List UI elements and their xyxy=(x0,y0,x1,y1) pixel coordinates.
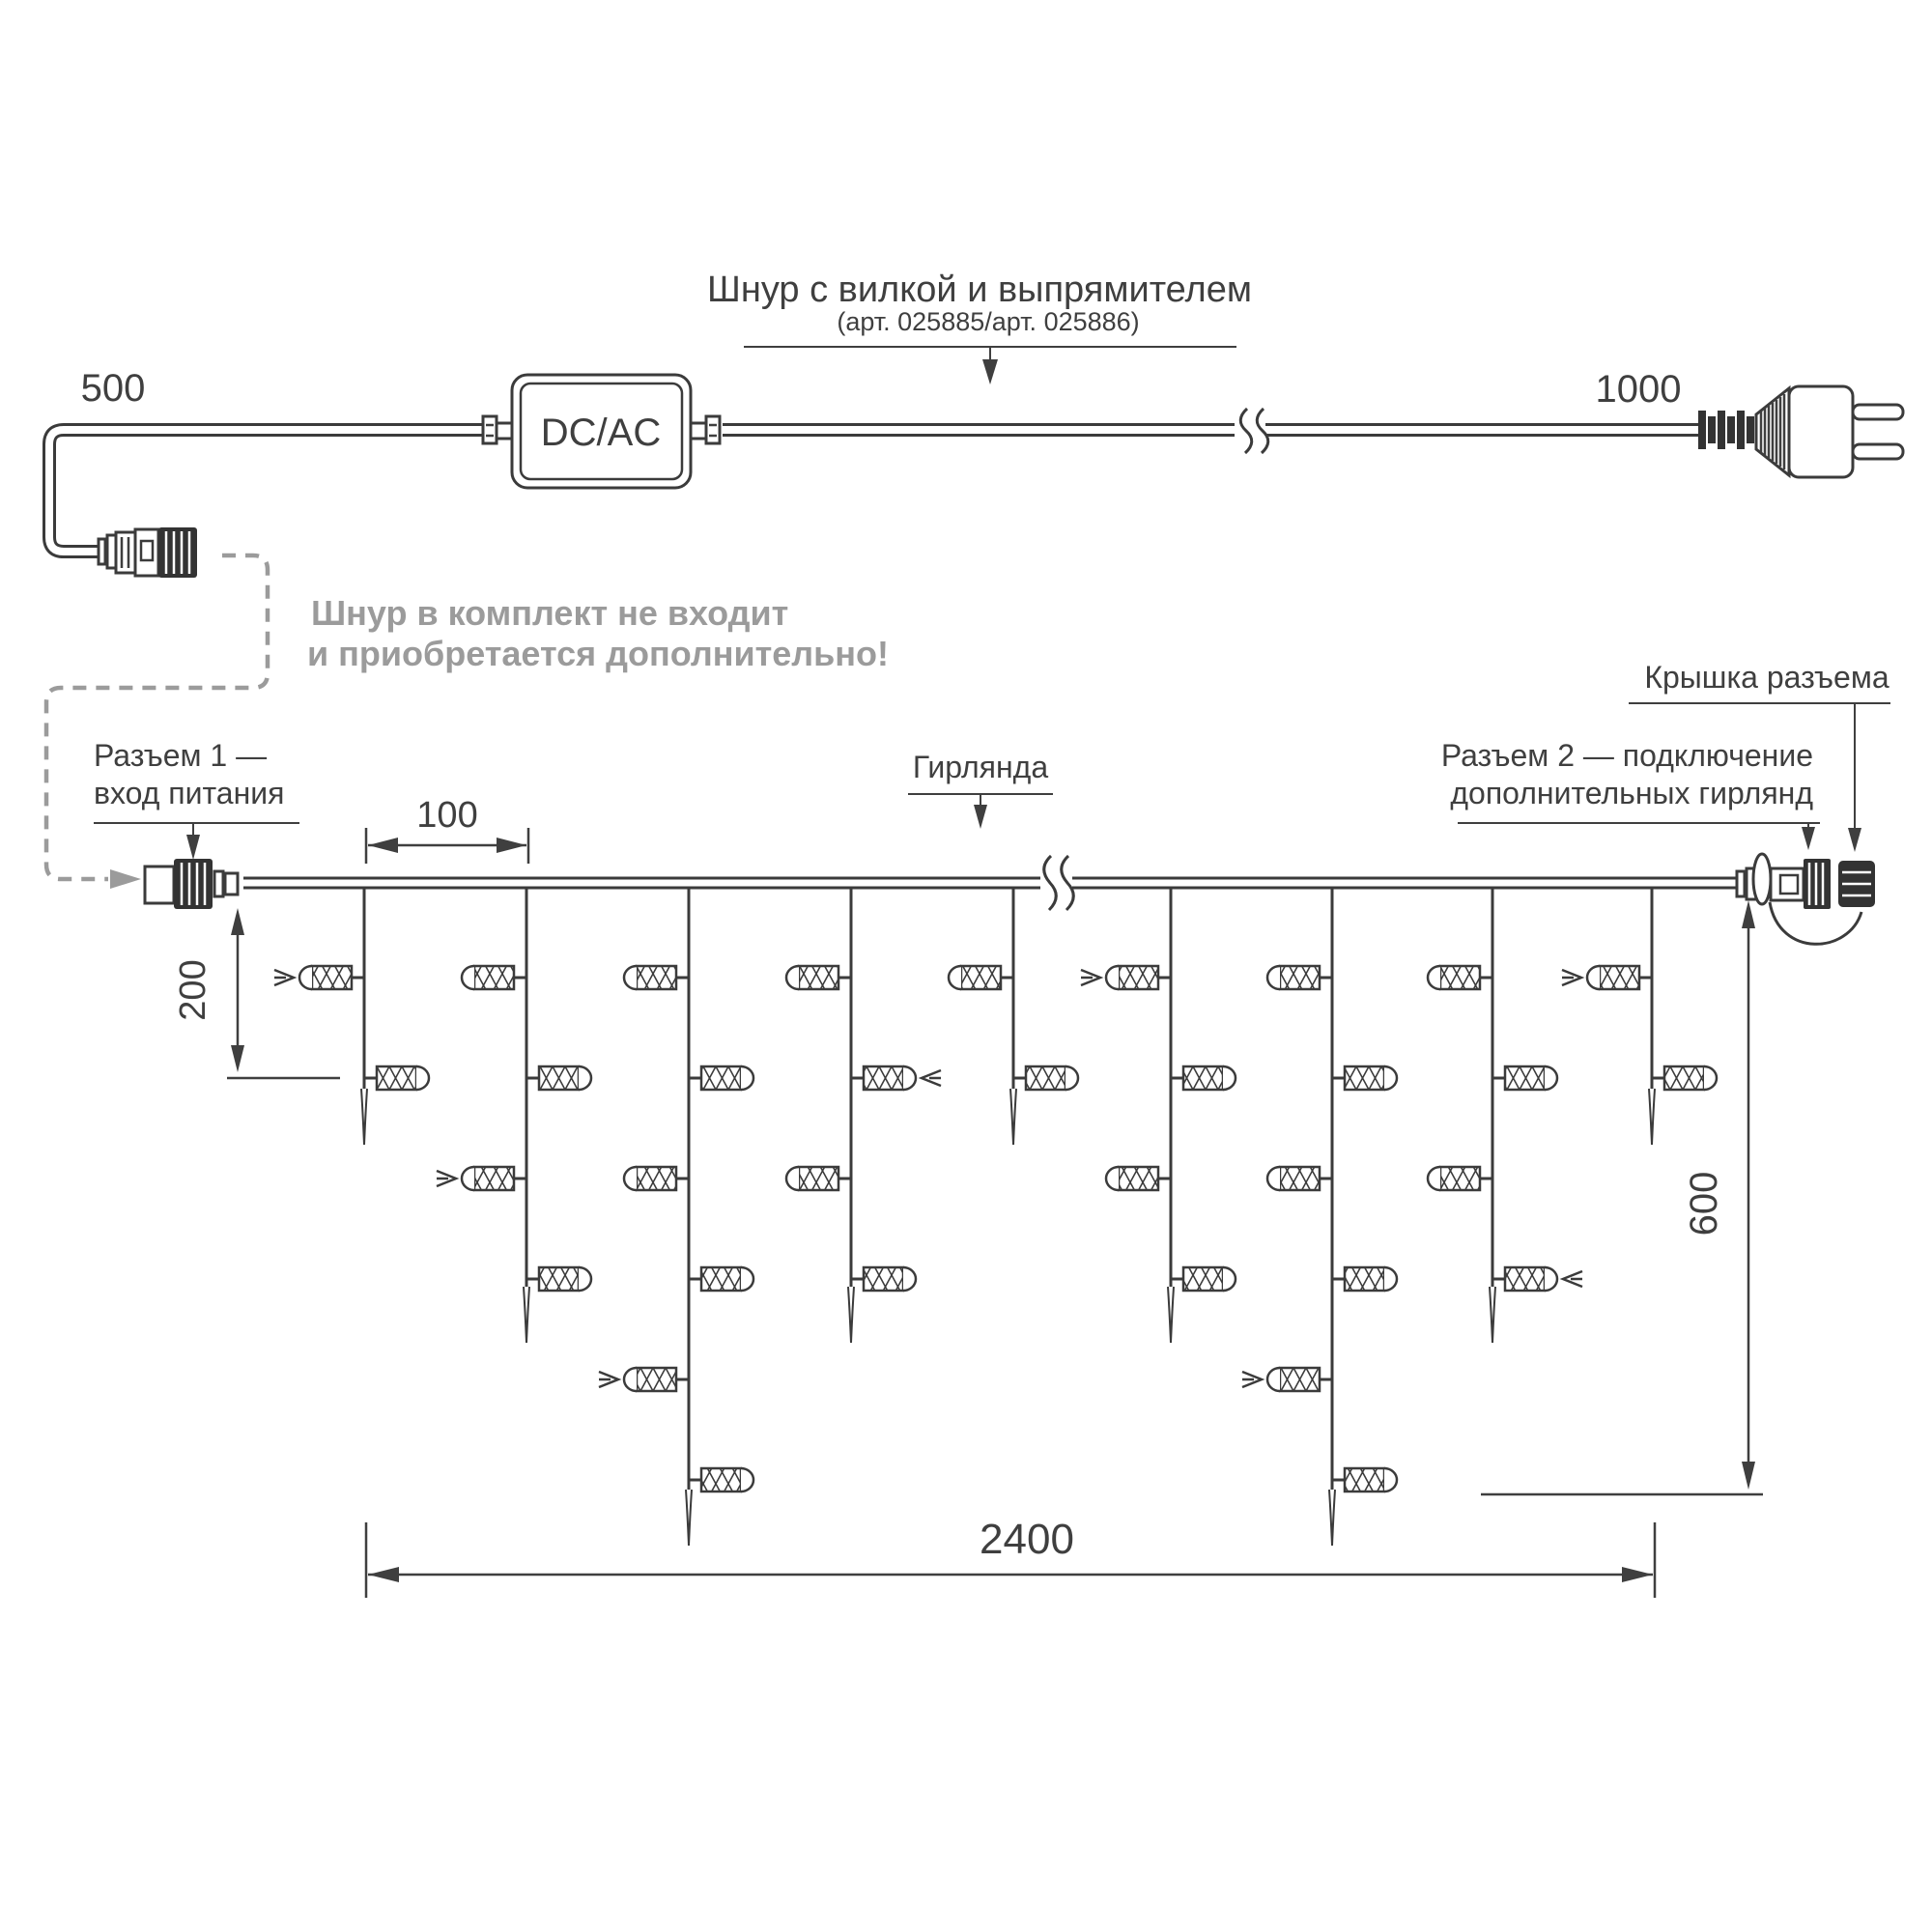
led-cap xyxy=(741,1066,753,1090)
dim-600-label: 600 xyxy=(1683,1172,1725,1236)
led-body xyxy=(312,966,352,989)
connector2-label-line2: дополнительных гирлянд xyxy=(1450,776,1813,810)
cord-output-connector xyxy=(99,527,197,578)
drop-tip xyxy=(848,1287,854,1343)
led-cap xyxy=(1267,1368,1280,1391)
led-body xyxy=(1183,1066,1223,1090)
led-cap xyxy=(1106,1167,1119,1190)
drop-tip xyxy=(1010,1089,1016,1145)
led-body xyxy=(1345,1066,1384,1090)
led-body xyxy=(1280,1167,1320,1190)
led-body xyxy=(1345,1267,1384,1291)
garland-drop xyxy=(1562,889,1717,1145)
cap-arrowhead-icon xyxy=(1848,828,1861,852)
plug-strain-relief xyxy=(1698,411,1754,449)
led-body xyxy=(474,966,514,989)
garland-drop xyxy=(599,889,753,1546)
connector1-label-line1: Разъем 1 — xyxy=(94,738,267,773)
garland-break-icon xyxy=(1044,856,1074,910)
garland-drop xyxy=(786,889,941,1343)
garland-drop xyxy=(1428,889,1582,1343)
led-body xyxy=(1440,966,1480,989)
led-cap xyxy=(1065,1066,1078,1090)
led-cap xyxy=(1587,966,1600,989)
led-cap xyxy=(579,1066,591,1090)
note-line2: и приобретается дополнительно! xyxy=(307,634,889,673)
power-plug xyxy=(1698,386,1903,477)
led-body xyxy=(1026,1066,1065,1090)
dcac-right-nub xyxy=(691,416,720,443)
dim-2400-label: 2400 xyxy=(980,1516,1074,1563)
led-cap xyxy=(1704,1066,1717,1090)
led-cap xyxy=(1106,966,1119,989)
led-body xyxy=(799,966,838,989)
led-marker-icon xyxy=(1563,1271,1582,1287)
led-body xyxy=(1119,966,1158,989)
cable-break-icon xyxy=(1240,409,1268,453)
led-body xyxy=(474,1167,514,1190)
garland-drop xyxy=(1242,889,1397,1546)
garland-wiring-diagram: Шнур с вилкой и выпрямителем (арт. 02588… xyxy=(0,0,1932,1932)
drop-tip xyxy=(1490,1287,1495,1343)
plug-prong-bottom xyxy=(1853,444,1903,459)
diagram-page: Шнур с вилкой и выпрямителем (арт. 02588… xyxy=(0,0,1932,1932)
garland-drop xyxy=(1081,889,1236,1343)
garland-label: Гирлянда xyxy=(913,750,1048,784)
cap-label: Крышка разъема xyxy=(1644,660,1889,695)
led-body xyxy=(1280,1368,1320,1391)
led-body xyxy=(1600,966,1639,989)
led-marker-icon xyxy=(1242,1372,1262,1387)
led-body xyxy=(1664,1066,1704,1090)
led-body xyxy=(864,1066,903,1090)
led-cap xyxy=(741,1468,753,1492)
led-cap xyxy=(786,966,799,989)
garland-arrowhead-icon xyxy=(974,805,987,829)
drop-tip xyxy=(361,1089,367,1145)
led-cap xyxy=(1545,1066,1557,1090)
dim-100-label: 100 xyxy=(416,795,477,836)
led-cap xyxy=(1428,966,1440,989)
cord-section: Шнур с вилкой и выпрямителем (арт. 02588… xyxy=(49,270,1903,578)
drop-tip xyxy=(686,1490,692,1546)
drop-tip xyxy=(524,1287,529,1343)
dim-200: 200 xyxy=(173,908,340,1078)
note-line1: Шнур в комплект не входит xyxy=(311,593,788,633)
connector2-label-line1: Разъем 2 — подключение xyxy=(1441,738,1813,773)
plug-cone-hatch xyxy=(1761,394,1784,469)
garland-drop xyxy=(437,889,591,1343)
connector1-power-input xyxy=(145,859,238,909)
led-body xyxy=(701,1267,741,1291)
dcac-label: DC/AC xyxy=(541,412,661,454)
dim-100: 100 xyxy=(366,795,528,864)
dim-1000-label: 1000 xyxy=(1596,368,1682,411)
led-body xyxy=(701,1066,741,1090)
connector2-extension xyxy=(1737,854,1875,944)
dashed-route xyxy=(46,555,268,879)
led-body xyxy=(701,1468,741,1492)
garland-drops xyxy=(274,889,1717,1546)
led-cap xyxy=(1545,1267,1557,1291)
dashed-route-arrowhead-icon xyxy=(110,869,141,889)
led-cap xyxy=(1384,1066,1397,1090)
led-body xyxy=(1345,1468,1384,1492)
led-cap xyxy=(416,1066,429,1090)
garland-drop xyxy=(949,889,1078,1145)
drop-tip xyxy=(1649,1089,1655,1145)
drop-tip xyxy=(1168,1287,1174,1343)
led-body xyxy=(539,1066,579,1090)
dim-2400: 2400 xyxy=(366,1516,1655,1598)
connector1-arrowhead-icon xyxy=(186,835,200,860)
led-cap xyxy=(1428,1167,1440,1190)
led-cap xyxy=(1384,1267,1397,1291)
led-cap xyxy=(462,966,474,989)
led-cap xyxy=(741,1267,753,1291)
dcac-left-nub xyxy=(483,416,512,443)
led-cap xyxy=(624,966,637,989)
led-marker-icon xyxy=(437,1171,456,1186)
led-body xyxy=(799,1167,838,1190)
connector2-ring xyxy=(1753,854,1771,904)
dim-200-label: 200 xyxy=(173,959,213,1020)
connector1-label-line2: вход питания xyxy=(94,776,284,810)
garland-drop xyxy=(274,889,429,1145)
connector2-arrowhead-icon xyxy=(1802,827,1815,850)
led-marker-icon xyxy=(274,970,294,985)
led-body xyxy=(1183,1267,1223,1291)
led-cap xyxy=(624,1368,637,1391)
plug-prong-top xyxy=(1853,405,1903,419)
led-cap xyxy=(903,1066,916,1090)
led-body xyxy=(1280,966,1320,989)
led-body xyxy=(637,1368,676,1391)
led-cap xyxy=(1223,1267,1236,1291)
led-cap xyxy=(786,1167,799,1190)
led-marker-icon xyxy=(1081,970,1100,985)
adapter-cord-left-core xyxy=(49,430,483,552)
led-cap xyxy=(1267,1167,1280,1190)
led-body xyxy=(1440,1167,1480,1190)
not-included-callout: Шнур в комплект не входит и приобретаетс… xyxy=(46,555,889,889)
led-marker-icon xyxy=(1562,970,1581,985)
led-body xyxy=(539,1267,579,1291)
led-cap xyxy=(949,966,961,989)
led-cap xyxy=(1384,1468,1397,1492)
led-body xyxy=(1119,1167,1158,1190)
cord-connector-thread xyxy=(158,527,197,578)
led-cap xyxy=(462,1167,474,1190)
connector2-leader-line xyxy=(1458,823,1820,829)
led-cap xyxy=(903,1267,916,1291)
led-cap xyxy=(579,1267,591,1291)
connector-cap xyxy=(1838,861,1875,907)
cord-subtitle: (арт. 025885/арт. 025886) xyxy=(837,307,1139,336)
cord-title: Шнур с вилкой и выпрямителем xyxy=(707,270,1252,310)
led-cap xyxy=(1223,1066,1236,1090)
led-cap xyxy=(299,966,312,989)
dim-500-label: 500 xyxy=(81,367,146,410)
garland-section: Разъем 1 — вход питания 100 xyxy=(94,660,1890,1598)
led-body xyxy=(864,1267,903,1291)
led-cap xyxy=(1267,966,1280,989)
plug-body xyxy=(1789,386,1853,477)
adapter-cord-left xyxy=(49,430,483,552)
led-body xyxy=(1505,1066,1545,1090)
led-body xyxy=(637,1167,676,1190)
drop-tip xyxy=(1329,1490,1335,1546)
led-body xyxy=(1505,1267,1545,1291)
led-cap xyxy=(624,1167,637,1190)
led-body xyxy=(637,966,676,989)
cord-title-arrowhead-icon xyxy=(982,359,998,384)
led-marker-icon xyxy=(922,1070,941,1086)
led-body xyxy=(377,1066,416,1090)
led-body xyxy=(961,966,1001,989)
led-marker-icon xyxy=(599,1372,618,1387)
dcac-converter: DC/AC xyxy=(483,375,720,488)
connector1-leader-line xyxy=(94,823,299,837)
